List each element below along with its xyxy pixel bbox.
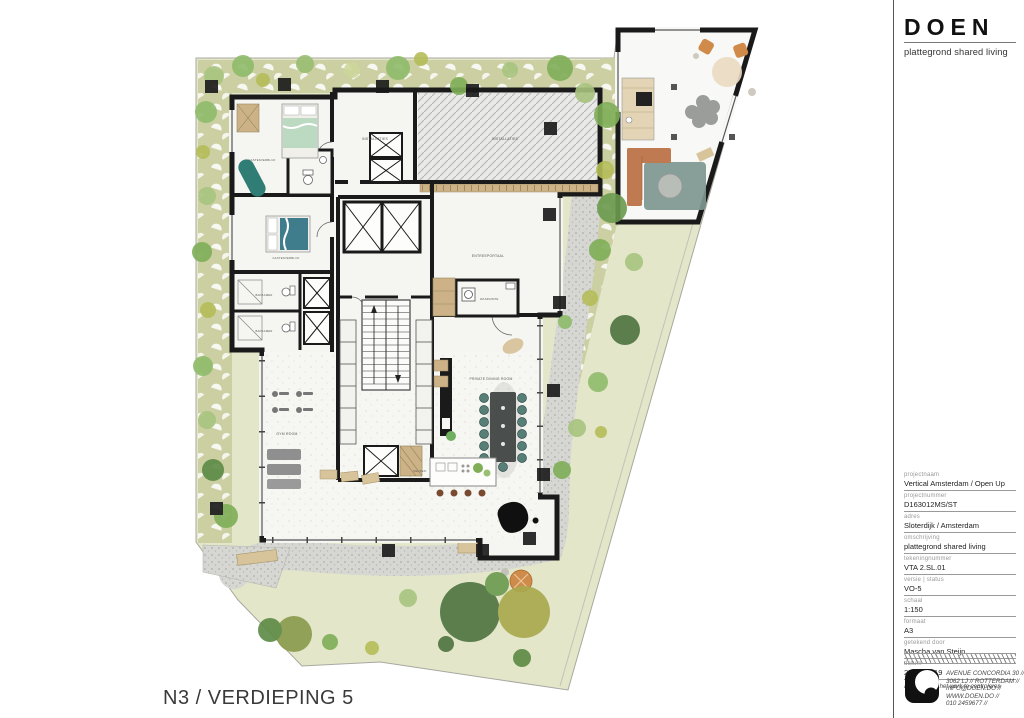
address-lines: AVENUE CONCORDIA 30 // 3062 LJ // ROTTER… [946,668,1024,708]
room-label: KEUKEN [413,469,426,473]
doen-logo: DOEN [904,14,1016,43]
stairs [362,300,410,390]
room-label: GASTENVERBLIJF [272,256,299,260]
field-value: VTA 2.SL.01 [904,562,1016,575]
address-line: INFO@DOEN.DO // [946,685,1024,693]
field-value: D163012MS/ST [904,499,1016,512]
field-value: A3 [904,625,1016,638]
address-line: 010 2459677 // [946,700,1024,708]
logo-subtitle: plattegrond shared living [904,47,1016,57]
title-block: DOEN plattegrond shared living projectna… [893,0,1024,718]
field-value: 1:150 [904,604,1016,617]
doen-logo-mark [904,668,940,704]
address-line: WWW.DOEN.DO // [946,693,1024,701]
room-label: INSTALLATIES [362,137,389,141]
room-label: BADKAMER [255,329,272,333]
room-label: WASRUIMTE [480,297,499,301]
bed [266,216,310,252]
washer-icon [462,288,475,301]
sheet: GASTENVERBLIJF INSTALLATIES INSTALLATIES… [0,0,1024,718]
room-label: GASTENVERBLIJF [248,158,275,162]
field-value: VO-5 [904,583,1016,596]
room-label: INSTALLATIES [492,137,519,141]
contact-block: AVENUE CONCORDIA 30 // 3062 LJ // ROTTER… [904,668,1020,708]
bed [282,104,318,158]
room-label: BADKAMER [255,293,272,297]
field-value: Sloterdijk / Amsterdam [904,520,1016,533]
address-line: AVENUE CONCORDIA 30 // [946,670,1024,678]
room-label: ENTREEPORTAAL [472,254,505,258]
room-label: GYM ROOM [276,432,297,436]
floor-plan: GASTENVERBLIJF INSTALLATIES INSTALLATIES… [0,0,893,718]
field-value: plattegrond shared living [904,541,1016,554]
elevator-shafts [344,202,420,252]
address-line: 3062 LJ // ROTTERDAM // [946,678,1024,686]
field-value: Vertical Amsterdam / Open Up [904,478,1016,491]
zigzag-divider [904,653,1016,664]
room-label: PRIVATE DINING ROOM [469,377,512,381]
drawing-title: N3 / VERDIEPING 5 [163,687,354,710]
